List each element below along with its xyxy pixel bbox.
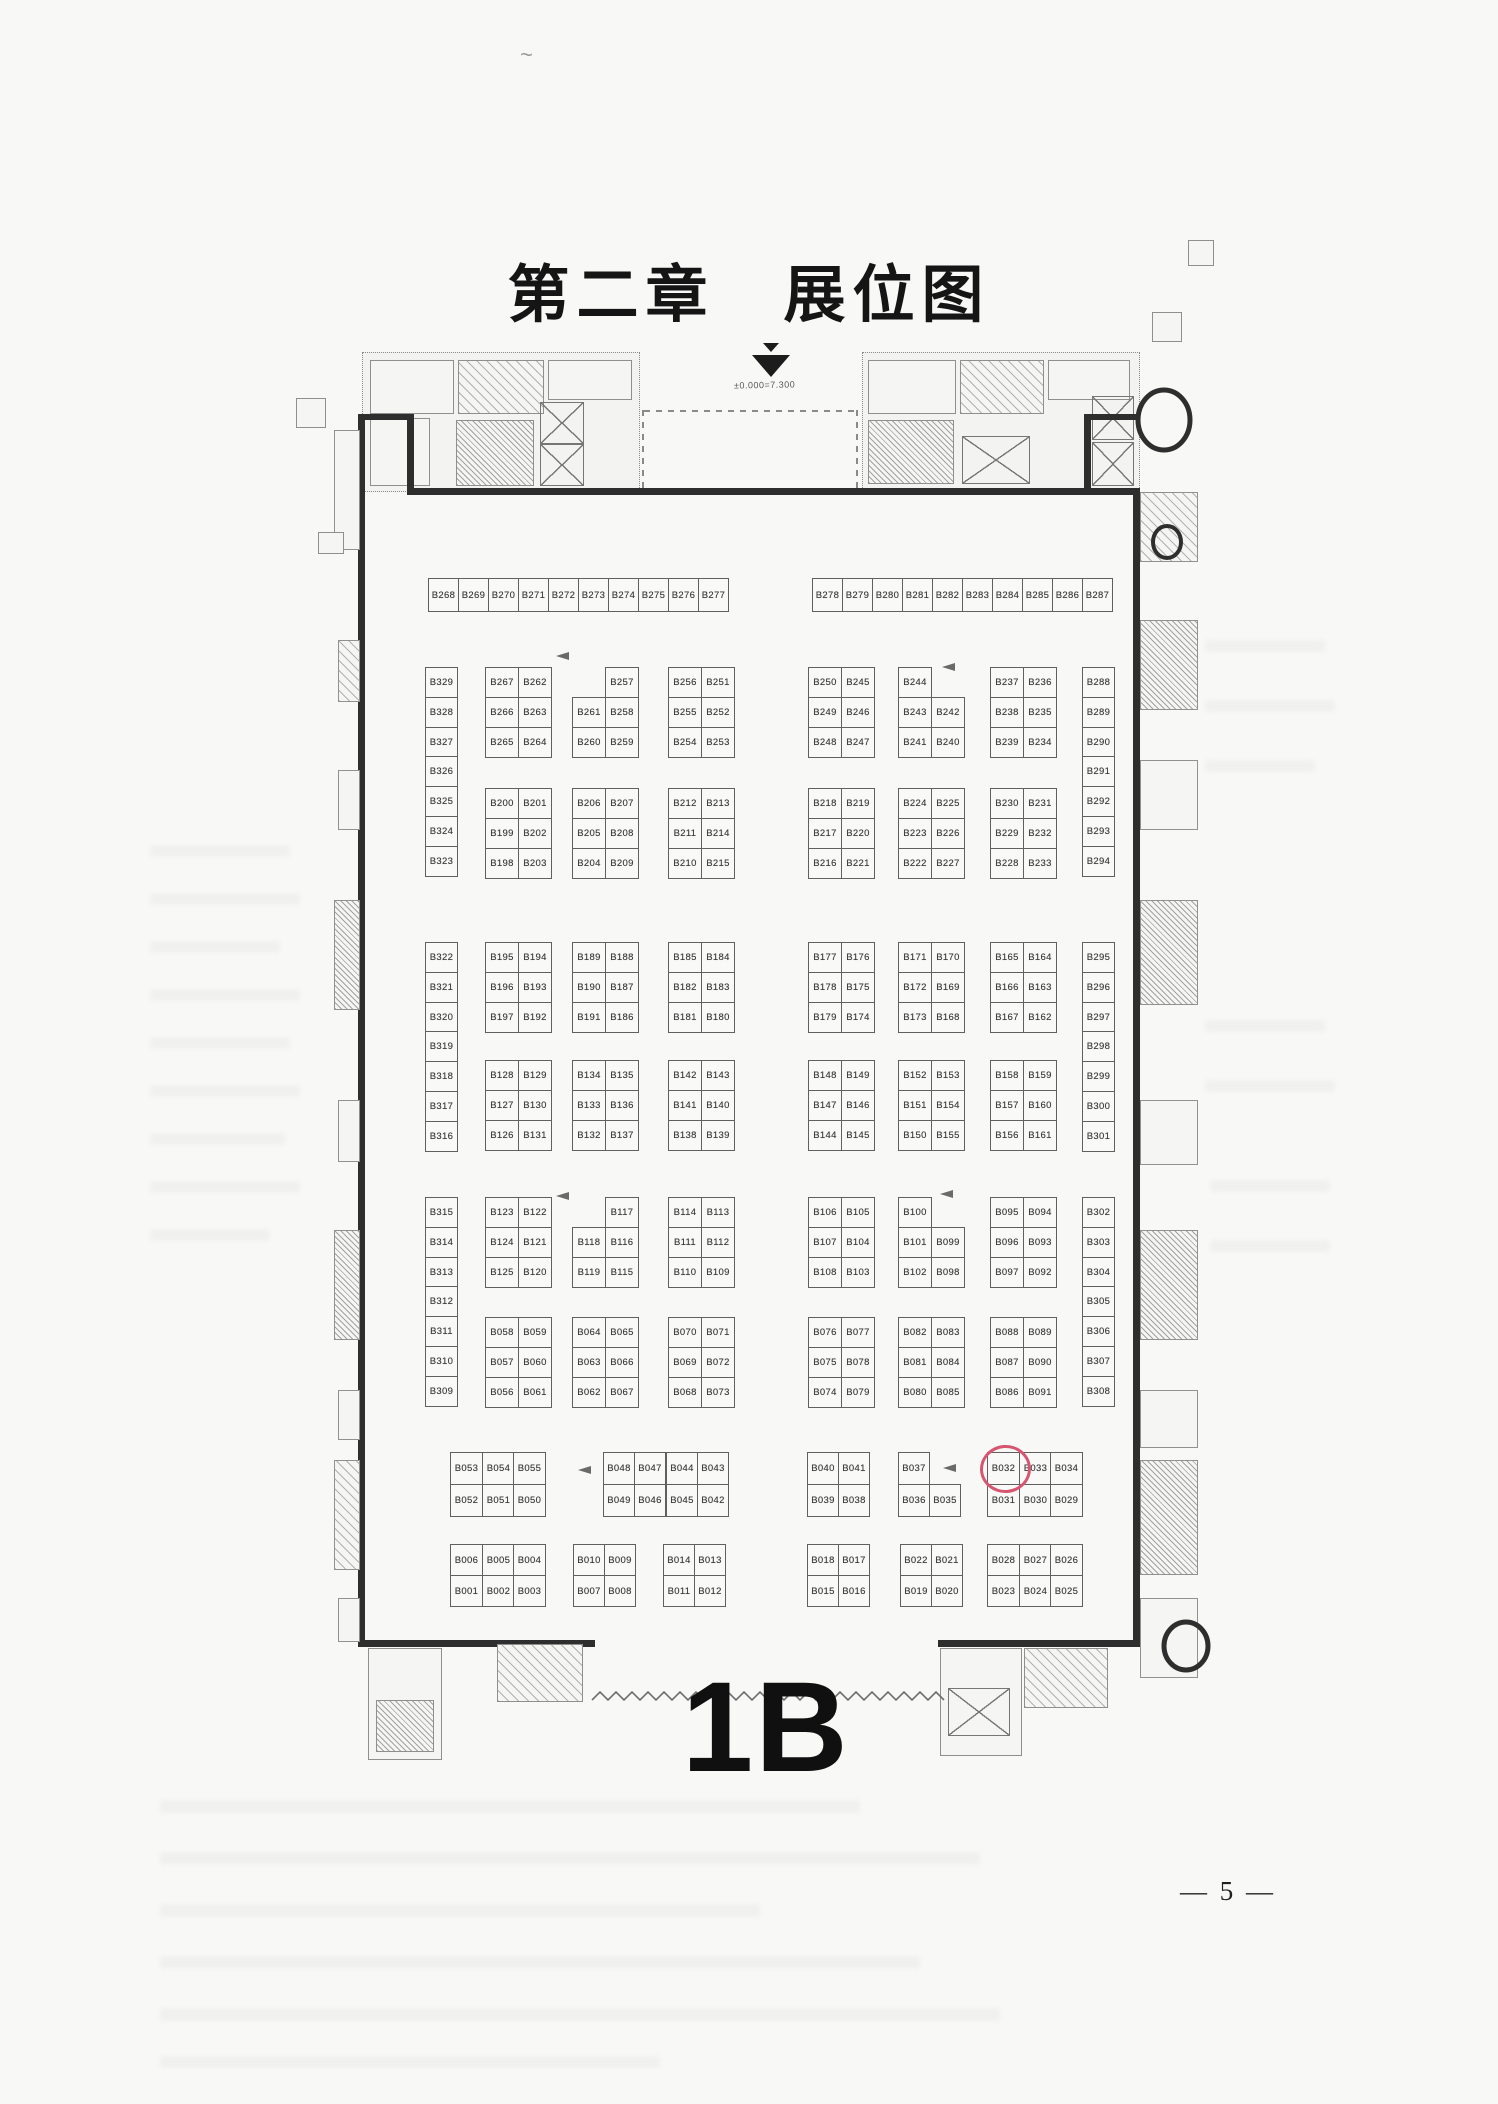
booth-B192: B192	[518, 1002, 552, 1033]
booth-B211: B211	[668, 818, 702, 849]
booth-B283: B283	[962, 578, 993, 612]
booth-B323: B323	[425, 846, 458, 877]
booth-B312: B312	[425, 1286, 458, 1317]
booth-B147: B147	[808, 1090, 842, 1121]
booth-B035: B035	[929, 1484, 961, 1517]
booth-B116: B116	[605, 1227, 639, 1258]
booth-B052: B052	[450, 1484, 483, 1517]
booth-B127: B127	[485, 1090, 519, 1121]
booth-B181: B181	[668, 1002, 702, 1033]
booth-B121: B121	[518, 1227, 552, 1258]
booth-B142: B142	[668, 1060, 702, 1091]
booth-B140: B140	[701, 1090, 735, 1121]
booth-B175: B175	[841, 972, 875, 1003]
booth-B070: B070	[668, 1317, 702, 1348]
booth-B225: B225	[931, 788, 965, 819]
booth-B294: B294	[1082, 846, 1115, 877]
booth-B122: B122	[518, 1197, 552, 1228]
booth-B264: B264	[518, 727, 552, 758]
booth-B091: B091	[1023, 1377, 1057, 1408]
booth-B042: B042	[697, 1484, 729, 1517]
booth-B073: B073	[701, 1377, 735, 1408]
booth-B027: B027	[1019, 1544, 1052, 1576]
booth-B282: B282	[932, 578, 963, 612]
booth-B233: B233	[1023, 848, 1057, 879]
booth-B110: B110	[668, 1257, 702, 1288]
booth-block-c3: B114B113B111B112B110B109	[668, 1197, 735, 1288]
booth-B313: B313	[425, 1257, 458, 1288]
booth-B062: B062	[572, 1377, 606, 1408]
booth-B016: B016	[838, 1575, 870, 1607]
booth-B307: B307	[1082, 1346, 1115, 1377]
booth-B080: B080	[898, 1377, 932, 1408]
booth-block-b3: B185B184B182B183B181B180	[668, 942, 735, 1033]
booth-B235: B235	[1023, 697, 1057, 728]
booth-B136: B136	[605, 1090, 639, 1121]
booth-B230: B230	[990, 788, 1024, 819]
booth-block-c5: B100B101B099B102B098	[898, 1197, 965, 1288]
booth-B315: B315	[425, 1197, 458, 1228]
booth-B295: B295	[1082, 942, 1115, 973]
booth-block-b10: B148B149B147B146B144B145	[808, 1060, 875, 1151]
booth-B203: B203	[518, 848, 552, 879]
booth-B045: B045	[666, 1484, 698, 1517]
booth-B024: B024	[1019, 1575, 1052, 1607]
booth-B204: B204	[572, 848, 606, 879]
booth-B065: B065	[605, 1317, 639, 1348]
hall-label: 1B	[682, 1664, 850, 1792]
booth-B149: B149	[841, 1060, 875, 1091]
booth-B237: B237	[990, 667, 1024, 698]
booth-B049: B049	[603, 1484, 635, 1517]
booth-B019: B019	[900, 1575, 932, 1607]
booth-block-e4: B018B017B015B016	[807, 1544, 870, 1607]
booth-block-b6: B165B164B166B163B167B162	[990, 942, 1057, 1033]
booth-block-a3: B256B251B255B252B254B253	[668, 667, 735, 758]
booth-B239: B239	[990, 727, 1024, 758]
booth-B028: B028	[987, 1544, 1020, 1576]
booth-B326: B326	[425, 756, 458, 787]
booth-B071: B071	[701, 1317, 735, 1348]
booth-B036: B036	[898, 1484, 930, 1517]
booth-B055: B055	[513, 1452, 546, 1485]
booth-B244: B244	[898, 667, 932, 698]
booth-B191: B191	[572, 1002, 606, 1033]
booth-B310: B310	[425, 1346, 458, 1377]
booth-B195: B195	[485, 942, 519, 973]
booth-B325: B325	[425, 786, 458, 817]
booth-B172: B172	[898, 972, 932, 1003]
booth-B232: B232	[1023, 818, 1057, 849]
booth-B012: B012	[694, 1575, 726, 1607]
booth-B317: B317	[425, 1091, 458, 1122]
booth-B083: B083	[931, 1317, 965, 1348]
booth-B037: B037	[898, 1452, 930, 1485]
booth-B259: B259	[605, 727, 639, 758]
booth-B006: B006	[450, 1544, 483, 1576]
booth-B168: B168	[931, 1002, 965, 1033]
booth-block-strip-right-c: B302B303B304B305B306B307B308	[1082, 1197, 1115, 1407]
booth-block-c1: B123B122B124B121B125B120	[485, 1197, 552, 1288]
booth-block-c12: B088B089B087B090B086B091	[990, 1317, 1057, 1408]
booth-B241: B241	[898, 727, 932, 758]
booth-B228: B228	[990, 848, 1024, 879]
booth-B017: B017	[838, 1544, 870, 1576]
booth-empty-slot	[931, 1197, 965, 1228]
booth-B207: B207	[605, 788, 639, 819]
booth-B214: B214	[701, 818, 735, 849]
booth-B020: B020	[931, 1575, 963, 1607]
booth-B125: B125	[485, 1257, 519, 1288]
booth-B007: B007	[573, 1575, 605, 1607]
booth-B185: B185	[668, 942, 702, 973]
booth-B194: B194	[518, 942, 552, 973]
booth-B247: B247	[841, 727, 875, 758]
booth-B221: B221	[841, 848, 875, 879]
booth-B273: B273	[578, 578, 609, 612]
booth-B219: B219	[841, 788, 875, 819]
booth-B186: B186	[605, 1002, 639, 1033]
booth-B173: B173	[898, 1002, 932, 1033]
booth-block-a10: B218B219B217B220B216B221	[808, 788, 875, 879]
booth-B200: B200	[485, 788, 519, 819]
booth-B057: B057	[485, 1347, 519, 1378]
booth-B067: B067	[605, 1377, 639, 1408]
booth-B189: B189	[572, 942, 606, 973]
booth-B044: B044	[666, 1452, 698, 1485]
booth-B229: B229	[990, 818, 1024, 849]
booth-B166: B166	[990, 972, 1024, 1003]
booth-B075: B075	[808, 1347, 842, 1378]
booth-B254: B254	[668, 727, 702, 758]
booth-block-d4: B037B036B035	[898, 1452, 961, 1517]
booth-B252: B252	[701, 697, 735, 728]
booth-B015: B015	[807, 1575, 839, 1607]
booth-B327: B327	[425, 727, 458, 758]
booth-B222: B222	[898, 848, 932, 879]
booth-B231: B231	[1023, 788, 1057, 819]
booth-B085: B085	[931, 1377, 965, 1408]
booth-B084: B084	[931, 1347, 965, 1378]
booth-B162: B162	[1023, 1002, 1057, 1033]
booth-B069: B069	[668, 1347, 702, 1378]
booth-B260: B260	[572, 727, 606, 758]
booth-B182: B182	[668, 972, 702, 1003]
booth-B253: B253	[701, 727, 735, 758]
booth-B258: B258	[605, 697, 639, 728]
booth-B269: B269	[458, 578, 489, 612]
booth-B215: B215	[701, 848, 735, 879]
booth-B278: B278	[812, 578, 843, 612]
booth-B321: B321	[425, 972, 458, 1003]
booth-B134: B134	[572, 1060, 606, 1091]
booth-B193: B193	[518, 972, 552, 1003]
booth-B281: B281	[902, 578, 933, 612]
booth-B248: B248	[808, 727, 842, 758]
booth-B139: B139	[701, 1120, 735, 1151]
booth-B100: B100	[898, 1197, 932, 1228]
booth-B113: B113	[701, 1197, 735, 1228]
booth-B090: B090	[1023, 1347, 1057, 1378]
booth-B130: B130	[518, 1090, 552, 1121]
booth-B038: B038	[838, 1484, 870, 1517]
booth-block-c4: B106B105B107B104B108B103	[808, 1197, 875, 1288]
booth-B041: B041	[838, 1452, 870, 1485]
booth-B297: B297	[1082, 1002, 1115, 1033]
booth-B306: B306	[1082, 1316, 1115, 1347]
booth-block-e2: B010B009B007B008	[573, 1544, 636, 1607]
booth-block-a9: B212B213B211B214B210B215	[668, 788, 735, 879]
booth-B236: B236	[1023, 667, 1057, 698]
booth-B309: B309	[425, 1376, 458, 1407]
booth-B107: B107	[808, 1227, 842, 1258]
booth-B099: B099	[931, 1227, 965, 1258]
booth-B227: B227	[931, 848, 965, 879]
booth-B053: B053	[450, 1452, 483, 1485]
booth-B131: B131	[518, 1120, 552, 1151]
booth-B318: B318	[425, 1061, 458, 1092]
booth-block-c2: B117B118B116B119B115	[572, 1197, 639, 1288]
booth-B059: B059	[518, 1317, 552, 1348]
booth-B163: B163	[1023, 972, 1057, 1003]
booth-B128: B128	[485, 1060, 519, 1091]
booth-B243: B243	[898, 697, 932, 728]
booth-B144: B144	[808, 1120, 842, 1151]
booth-B096: B096	[990, 1227, 1024, 1258]
booth-block-e3: B014B013B011B012	[663, 1544, 726, 1607]
booth-B187: B187	[605, 972, 639, 1003]
booth-B129: B129	[518, 1060, 552, 1091]
booth-B190: B190	[572, 972, 606, 1003]
booth-block-c10: B076B077B075B078B074B079	[808, 1317, 875, 1408]
booth-B154: B154	[931, 1090, 965, 1121]
booth-B176: B176	[841, 942, 875, 973]
booth-B274: B274	[608, 578, 639, 612]
booth-B234: B234	[1023, 727, 1057, 758]
booth-B251: B251	[701, 667, 735, 698]
booth-B106: B106	[808, 1197, 842, 1228]
booth-B198: B198	[485, 848, 519, 879]
booth-B157: B157	[990, 1090, 1024, 1121]
booth-B043: B043	[697, 1452, 729, 1485]
booth-block-d2: B048B047B044B043B049B046B045B042	[603, 1452, 729, 1517]
booth-B293: B293	[1082, 816, 1115, 847]
booth-B079: B079	[841, 1377, 875, 1408]
booth-block-c7: B058B059B057B060B056B061	[485, 1317, 552, 1408]
booth-B308: B308	[1082, 1376, 1115, 1407]
booth-B150: B150	[898, 1120, 932, 1151]
booth-B197: B197	[485, 1002, 519, 1033]
booth-B141: B141	[668, 1090, 702, 1121]
booth-block-e6: B028B027B026B023B024B025	[987, 1544, 1083, 1607]
booth-B101: B101	[898, 1227, 932, 1258]
booth-B288: B288	[1082, 667, 1115, 698]
scanned-page: { "page": { "title": "第二章 展位图", "page_nu…	[0, 0, 1498, 2104]
booth-B117: B117	[605, 1197, 639, 1228]
booth-B021: B021	[931, 1544, 963, 1576]
booth-B089: B089	[1023, 1317, 1057, 1348]
booth-B169: B169	[931, 972, 965, 1003]
booth-B014: B014	[663, 1544, 695, 1576]
booth-B124: B124	[485, 1227, 519, 1258]
booth-block-a7: B200B201B199B202B198B203	[485, 788, 552, 879]
booth-B177: B177	[808, 942, 842, 973]
booth-B061: B061	[518, 1377, 552, 1408]
booth-B314: B314	[425, 1227, 458, 1258]
booth-block-b8: B134B135B133B136B132B137	[572, 1060, 639, 1151]
booth-B238: B238	[990, 697, 1024, 728]
booth-B046: B046	[634, 1484, 666, 1517]
booth-B270: B270	[488, 578, 519, 612]
booth-B267: B267	[485, 667, 519, 698]
booth-B188: B188	[605, 942, 639, 973]
booth-B133: B133	[572, 1090, 606, 1121]
booth-B086: B086	[990, 1377, 1024, 1408]
booth-B256: B256	[668, 667, 702, 698]
booth-B266: B266	[485, 697, 519, 728]
booth-B292: B292	[1082, 786, 1115, 817]
booth-B132: B132	[572, 1120, 606, 1151]
booth-B010: B010	[573, 1544, 605, 1576]
booth-B152: B152	[898, 1060, 932, 1091]
booth-B094: B094	[1023, 1197, 1057, 1228]
booth-block-a2: B257B261B258B260B259	[572, 667, 639, 758]
booth-B303: B303	[1082, 1227, 1115, 1258]
booth-B063: B063	[572, 1347, 606, 1378]
booth-block-b1: B195B194B196B193B197B192	[485, 942, 552, 1033]
booth-B302: B302	[1082, 1197, 1115, 1228]
booth-B284: B284	[992, 578, 1023, 612]
booth-B064: B064	[572, 1317, 606, 1348]
booth-B068: B068	[668, 1377, 702, 1408]
booth-B074: B074	[808, 1377, 842, 1408]
booth-B001: B001	[450, 1575, 483, 1607]
booth-B123: B123	[485, 1197, 519, 1228]
booth-B034: B034	[1050, 1452, 1083, 1485]
floor-plan: ±0.000=7.300	[0, 0, 1498, 2104]
booth-B290: B290	[1082, 727, 1115, 758]
booth-block-a5: B244B243B242B241B240	[898, 667, 965, 758]
booth-B145: B145	[841, 1120, 875, 1151]
booth-B137: B137	[605, 1120, 639, 1151]
booth-B224: B224	[898, 788, 932, 819]
booth-B026: B026	[1050, 1544, 1083, 1576]
booth-B004: B004	[513, 1544, 546, 1576]
booth-B213: B213	[701, 788, 735, 819]
booth-B155: B155	[931, 1120, 965, 1151]
booth-B030: B030	[1019, 1484, 1052, 1517]
booth-block-e1: B006B005B004B001B002B003	[450, 1544, 546, 1607]
booth-block-b9: B142B143B141B140B138B139	[668, 1060, 735, 1151]
booth-block-b2: B189B188B190B187B191B186	[572, 942, 639, 1033]
booth-B119: B119	[572, 1257, 606, 1288]
booth-empty-slot	[572, 667, 606, 698]
booth-B170: B170	[931, 942, 965, 973]
booth-B115: B115	[605, 1257, 639, 1288]
booth-B205: B205	[572, 818, 606, 849]
booth-B039: B039	[807, 1484, 839, 1517]
booth-B263: B263	[518, 697, 552, 728]
booth-block-e5: B022B021B019B020	[900, 1544, 963, 1607]
booth-B092: B092	[1023, 1257, 1057, 1288]
booth-B250: B250	[808, 667, 842, 698]
booth-B286: B286	[1052, 578, 1083, 612]
booth-block-a1: B267B262B266B263B265B264	[485, 667, 552, 758]
booth-B206: B206	[572, 788, 606, 819]
booth-B146: B146	[841, 1090, 875, 1121]
booth-block-c8: B064B065B063B066B062B067	[572, 1317, 639, 1408]
booth-B298: B298	[1082, 1031, 1115, 1062]
booth-B257: B257	[605, 667, 639, 698]
booth-block-strip-left-a: B329B328B327B326B325B324B323	[425, 667, 458, 877]
booth-B078: B078	[841, 1347, 875, 1378]
booth-B018: B018	[807, 1544, 839, 1576]
booth-B311: B311	[425, 1316, 458, 1347]
booth-B097: B097	[990, 1257, 1024, 1288]
booth-block-c9: B070B071B069B072B068B073	[668, 1317, 735, 1408]
booth-block-a6: B237B236B238B235B239B234	[990, 667, 1057, 758]
booth-B183: B183	[701, 972, 735, 1003]
booth-B277: B277	[698, 578, 729, 612]
booth-empty-slot	[931, 667, 965, 698]
booth-block-d1: B053B054B055B052B051B050	[450, 1452, 546, 1517]
booth-block-b12: B158B159B157B160B156B161	[990, 1060, 1057, 1151]
booth-B305: B305	[1082, 1286, 1115, 1317]
booth-B261: B261	[572, 697, 606, 728]
booth-B120: B120	[518, 1257, 552, 1288]
booth-B316: B316	[425, 1121, 458, 1152]
booth-B118: B118	[572, 1227, 606, 1258]
booth-B208: B208	[605, 818, 639, 849]
booth-B005: B005	[482, 1544, 515, 1576]
booth-B291: B291	[1082, 756, 1115, 787]
booth-B212: B212	[668, 788, 702, 819]
booth-B262: B262	[518, 667, 552, 698]
booth-block-a11: B224B225B223B226B222B227	[898, 788, 965, 879]
booth-B108: B108	[808, 1257, 842, 1288]
booth-B098: B098	[931, 1257, 965, 1288]
booth-B025: B025	[1050, 1575, 1083, 1607]
booth-block-top-row-right: B278B279B280B281B282B283B284B285B286B287	[812, 578, 1113, 612]
booth-B300: B300	[1082, 1091, 1115, 1122]
booth-B011: B011	[663, 1575, 695, 1607]
booth-B329: B329	[425, 667, 458, 698]
booth-block-a12: B230B231B229B232B228B233	[990, 788, 1057, 879]
booth-B240: B240	[931, 727, 965, 758]
booth-B029: B029	[1050, 1484, 1083, 1517]
booth-block-c6: B095B094B096B093B097B092	[990, 1197, 1057, 1288]
booth-B103: B103	[841, 1257, 875, 1288]
booth-block-d3: B040B041B039B038	[807, 1452, 870, 1517]
booth-B148: B148	[808, 1060, 842, 1091]
booth-B153: B153	[931, 1060, 965, 1091]
booth-B287: B287	[1082, 578, 1113, 612]
booth-B218: B218	[808, 788, 842, 819]
booth-B114: B114	[668, 1197, 702, 1228]
booth-B216: B216	[808, 848, 842, 879]
booth-B255: B255	[668, 697, 702, 728]
booth-B171: B171	[898, 942, 932, 973]
booth-B040: B040	[807, 1452, 839, 1485]
booth-B156: B156	[990, 1120, 1024, 1151]
booth-B054: B054	[482, 1452, 515, 1485]
booth-B112: B112	[701, 1227, 735, 1258]
booth-B217: B217	[808, 818, 842, 849]
booth-B209: B209	[605, 848, 639, 879]
booth-B102: B102	[898, 1257, 932, 1288]
booth-block-c11: B082B083B081B084B080B085	[898, 1317, 965, 1408]
booth-block-b4: B177B176B178B175B179B174	[808, 942, 875, 1033]
